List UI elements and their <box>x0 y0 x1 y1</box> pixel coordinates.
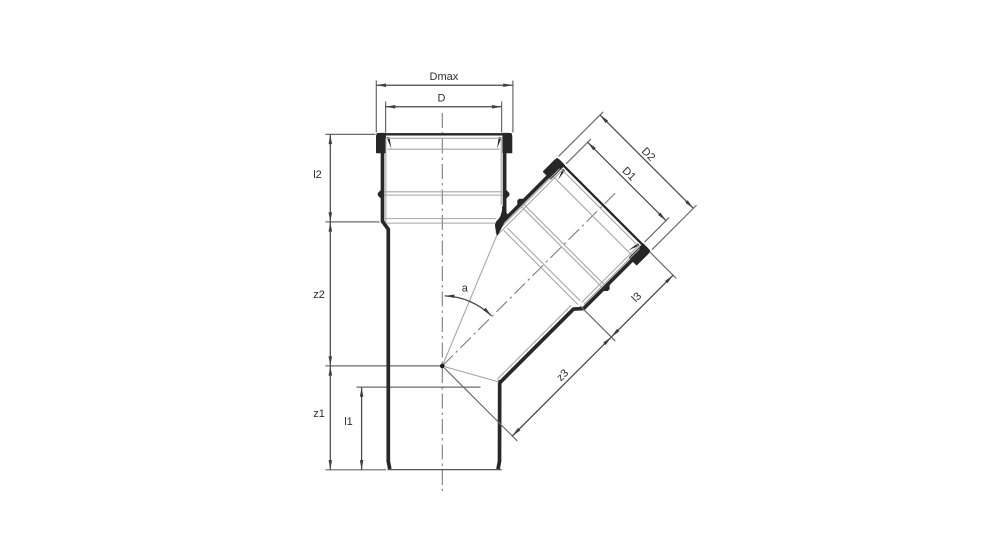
svg-text:z3: z3 <box>555 367 572 384</box>
svg-text:D: D <box>438 93 446 105</box>
svg-text:z1: z1 <box>313 408 325 420</box>
svg-text:l2: l2 <box>313 169 322 181</box>
svg-text:z2: z2 <box>313 289 325 301</box>
svg-text:D2: D2 <box>639 145 657 163</box>
svg-text:Dmax: Dmax <box>430 71 459 83</box>
svg-text:l3: l3 <box>630 290 645 305</box>
svg-text:a: a <box>462 283 469 295</box>
svg-text:D1: D1 <box>620 165 638 183</box>
svg-text:l1: l1 <box>344 416 353 428</box>
